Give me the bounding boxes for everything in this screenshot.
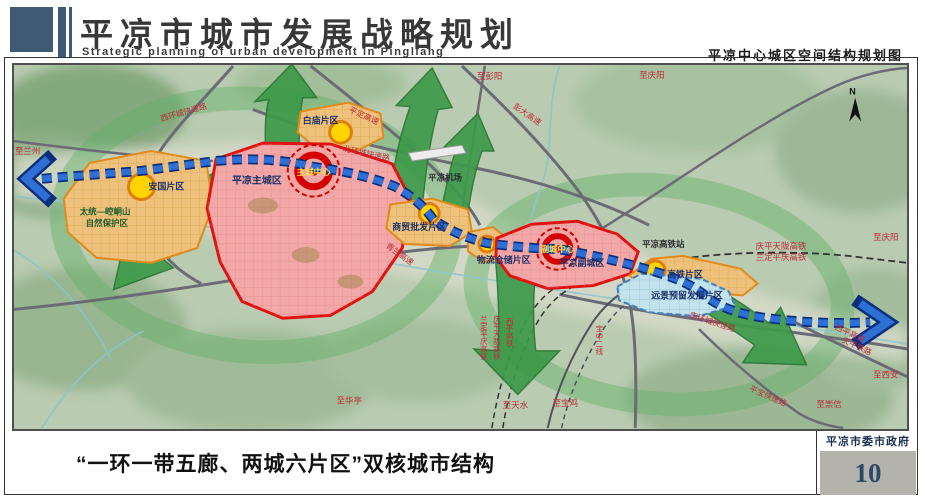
planning-map: N 至兰州 太统—崆峒山 自然保护区 西环城快速路 安国片区 平凉主城区 主城中… <box>12 63 909 431</box>
agency-name: 平凉市委市政府 <box>818 431 918 449</box>
label-to-qingyang-north: 至庆阳 <box>639 70 664 80</box>
label-district-trade: 商贸批发片区 <box>392 221 446 232</box>
header-accent-bar <box>58 7 66 57</box>
label-to-tianshui: 至天水 <box>503 400 529 410</box>
footer-caption-strip: “一环一带五廊、两城六片区”双核城市结构 <box>6 431 817 494</box>
label-sub-city: 平凉副城区 <box>560 257 605 268</box>
header-logo-square <box>10 7 53 52</box>
label-sub-center: 副城中心 <box>541 244 575 254</box>
label-to-baoji: 至宝鸡 <box>553 398 578 408</box>
header-accent-bar-thin <box>69 7 72 57</box>
label-district-hsr: 高铁片区 <box>667 269 703 280</box>
label-district-baimiao: 白庙片区 <box>303 114 339 125</box>
label-to-qingyang-east: 至庆阳 <box>873 232 898 242</box>
label-district-anguo: 安国片区 <box>148 181 184 192</box>
label-airport: 平凉机场 <box>428 173 462 183</box>
label-main-city: 平凉主城区 <box>232 174 282 187</box>
page-number: 10 <box>855 458 882 489</box>
label-rail-landing-pingqing: 兰定平庆高铁 <box>756 252 807 262</box>
label-main-center: 主城中心 <box>297 167 331 177</box>
label-district-logistics: 物流仓储片区 <box>477 254 531 265</box>
footer-stamp-column: 平凉市委市政府 10 <box>818 431 918 494</box>
label-to-xian: 至西安 <box>873 370 898 380</box>
compass-n-label: N <box>849 87 855 97</box>
label-nature-reserve-1: 太统—崆峒山 <box>79 206 131 216</box>
structure-caption: “一环一带五廊、两城六片区”双核城市结构 <box>76 448 495 478</box>
label-hsr-station: 平凉高铁站 <box>642 239 685 249</box>
label-rail-xiping-vertical: 西平高铁 <box>505 317 514 348</box>
page-number-box: 10 <box>820 451 916 495</box>
label-rail-qingping-tianlong: 庆平天陇高铁 <box>756 241 807 251</box>
label-to-lanzhou: 至兰州 <box>15 146 40 156</box>
planning-map-svg: N 至兰州 太统—崆峒山 自然保护区 西环城快速路 安国片区 平凉主城区 主城中… <box>14 65 907 429</box>
label-rail-baozhong2-vertical: 宝中二线 <box>595 324 604 355</box>
label-to-chongxin: 至崇信 <box>816 399 841 409</box>
label-nature-reserve-2: 自然保护区 <box>86 218 129 228</box>
label-district-future: 远景预留发展片区 <box>651 289 723 300</box>
planning-document-page: 平凉市城市发展战略规划 Strategic planning of urban … <box>0 0 925 500</box>
label-rail-qingping-tianlong-vertical: 庆平天陇高铁 <box>492 314 501 361</box>
label-to-pengyang: 至彭阳 <box>477 71 502 81</box>
label-rail-landing-pingqing-vertical: 兰定平庆高铁 <box>479 314 488 361</box>
label-to-huating: 至华亭 <box>337 395 362 405</box>
